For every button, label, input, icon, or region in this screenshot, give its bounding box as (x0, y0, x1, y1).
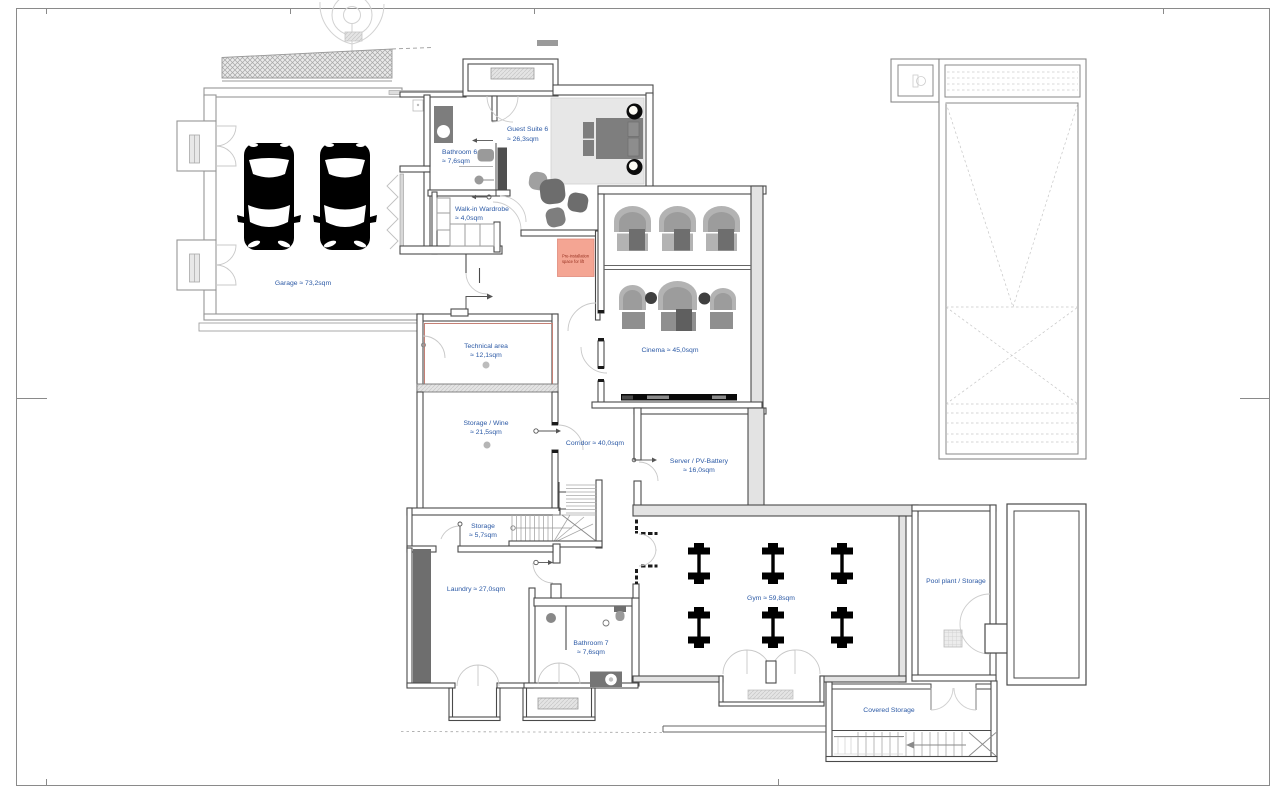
svg-text:≈ 7,6sqm: ≈ 7,6sqm (577, 649, 605, 656)
svg-text:Bathroom 6: Bathroom 6 (442, 149, 477, 156)
svg-text:≈ 21,5sqm: ≈ 21,5sqm (470, 429, 502, 436)
svg-text:≈ 5,7sqm: ≈ 5,7sqm (469, 532, 497, 539)
svg-text:Server / PV-Battery: Server / PV-Battery (670, 458, 729, 465)
svg-text:Technical area: Technical area (464, 343, 508, 350)
svg-text:≈ 16,0sqm: ≈ 16,0sqm (683, 467, 715, 474)
svg-text:≈ 12,1sqm: ≈ 12,1sqm (470, 352, 502, 359)
svg-text:Garage ≈ 73,2sqm: Garage ≈ 73,2sqm (275, 280, 332, 287)
svg-text:Storage: Storage (471, 523, 495, 530)
svg-text:space for lift: space for lift (562, 259, 585, 264)
svg-text:≈ 7,6sqm: ≈ 7,6sqm (442, 158, 470, 165)
svg-text:Walk-in Wardrobe: Walk-in Wardrobe (455, 206, 509, 213)
svg-text:Corridor ≈ 40,0sqm: Corridor ≈ 40,0sqm (566, 440, 624, 447)
svg-text:Storage / Wine: Storage / Wine (464, 420, 509, 427)
svg-text:≈ 26,3sqm: ≈ 26,3sqm (507, 136, 539, 143)
svg-text:≈ 4,0sqm: ≈ 4,0sqm (455, 215, 483, 222)
svg-text:Covered Storage: Covered Storage (863, 707, 915, 714)
svg-text:Bathroom 7: Bathroom 7 (573, 640, 608, 647)
svg-text:Laundry ≈ 27,0sqm: Laundry ≈ 27,0sqm (447, 586, 505, 593)
svg-text:Guest Suite 6: Guest Suite 6 (507, 126, 548, 133)
svg-text:Gym ≈ 59,8sqm: Gym ≈ 59,8sqm (747, 595, 795, 602)
svg-text:Pre-installation: Pre-installation (562, 254, 590, 259)
svg-text:Cinema ≈ 45,0sqm: Cinema ≈ 45,0sqm (642, 347, 699, 354)
svg-text:Pool plant / Storage: Pool plant / Storage (926, 578, 986, 585)
